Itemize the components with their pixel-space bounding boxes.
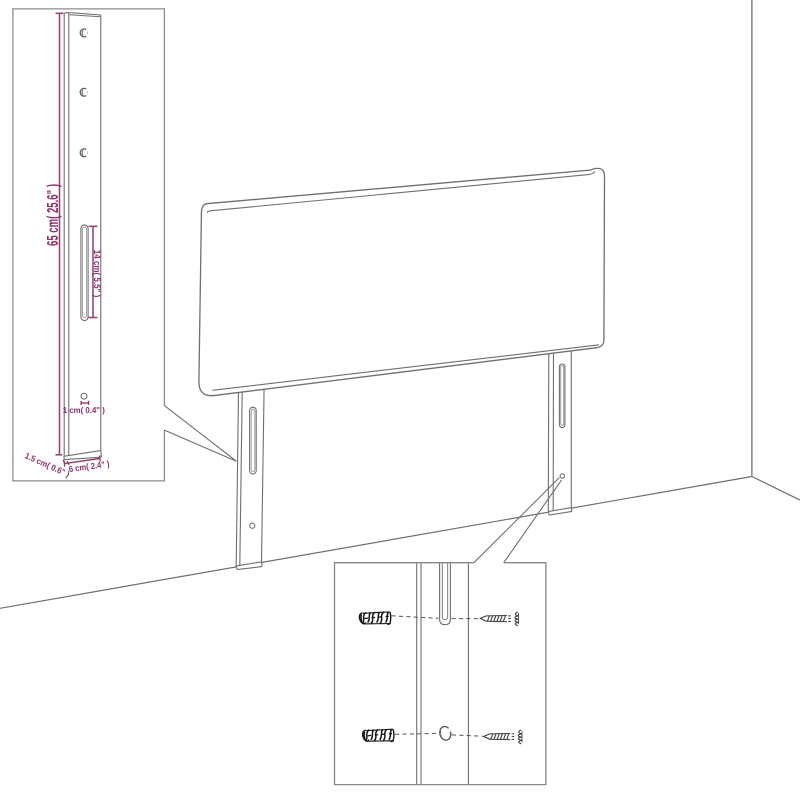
svg-text:65 cm( 25.6" ): 65 cm( 25.6" ) <box>45 184 62 246</box>
svg-text:1 cm( 0.4" ): 1 cm( 0.4" ) <box>63 405 105 415</box>
svg-text:14 cm( 5.5" ): 14 cm( 5.5" ) <box>92 250 102 298</box>
